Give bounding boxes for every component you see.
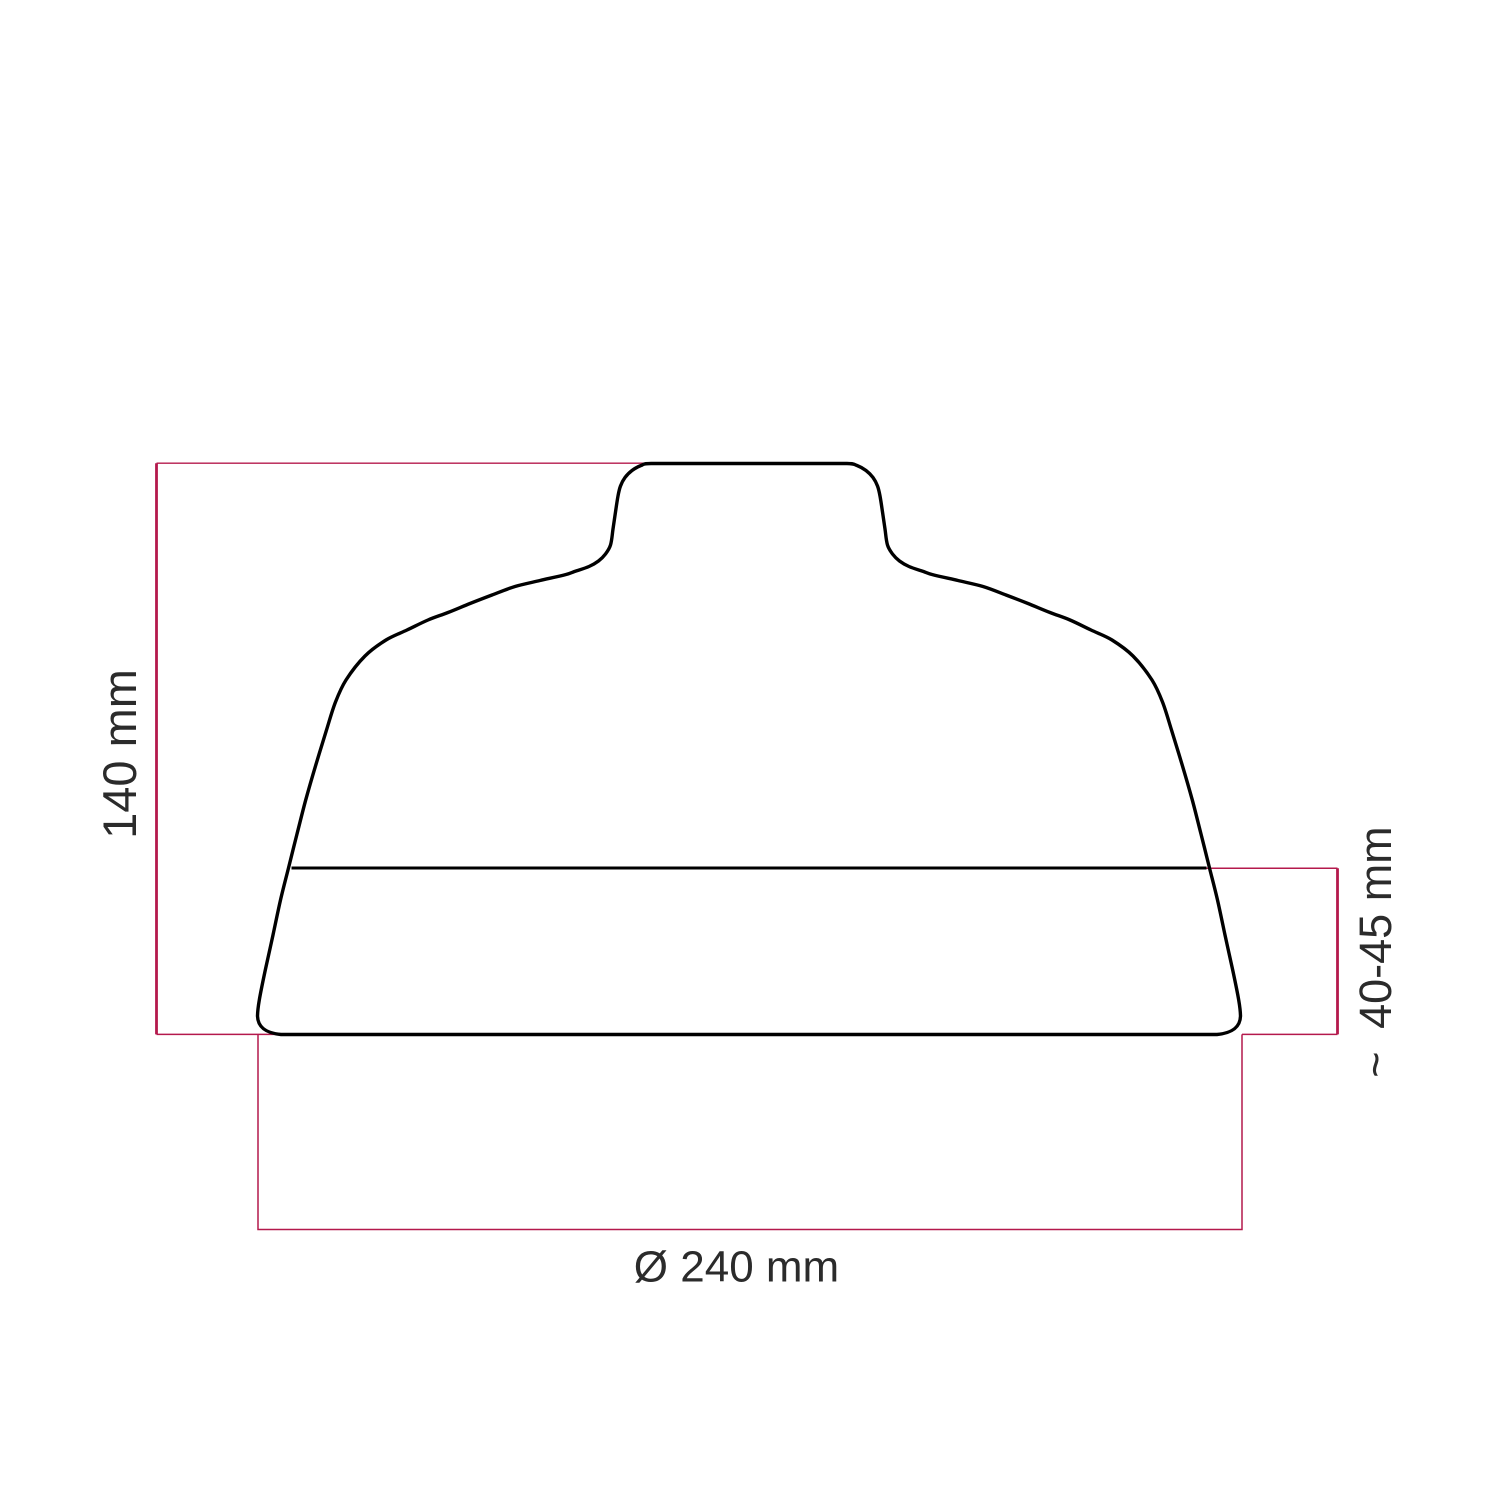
svg-text:Ø 240 mm: Ø 240 mm <box>634 1243 839 1292</box>
svg-text:~ 40-45 mm: ~ 40-45 mm <box>1350 826 1401 1077</box>
svg-text:140 mm: 140 mm <box>93 669 146 839</box>
